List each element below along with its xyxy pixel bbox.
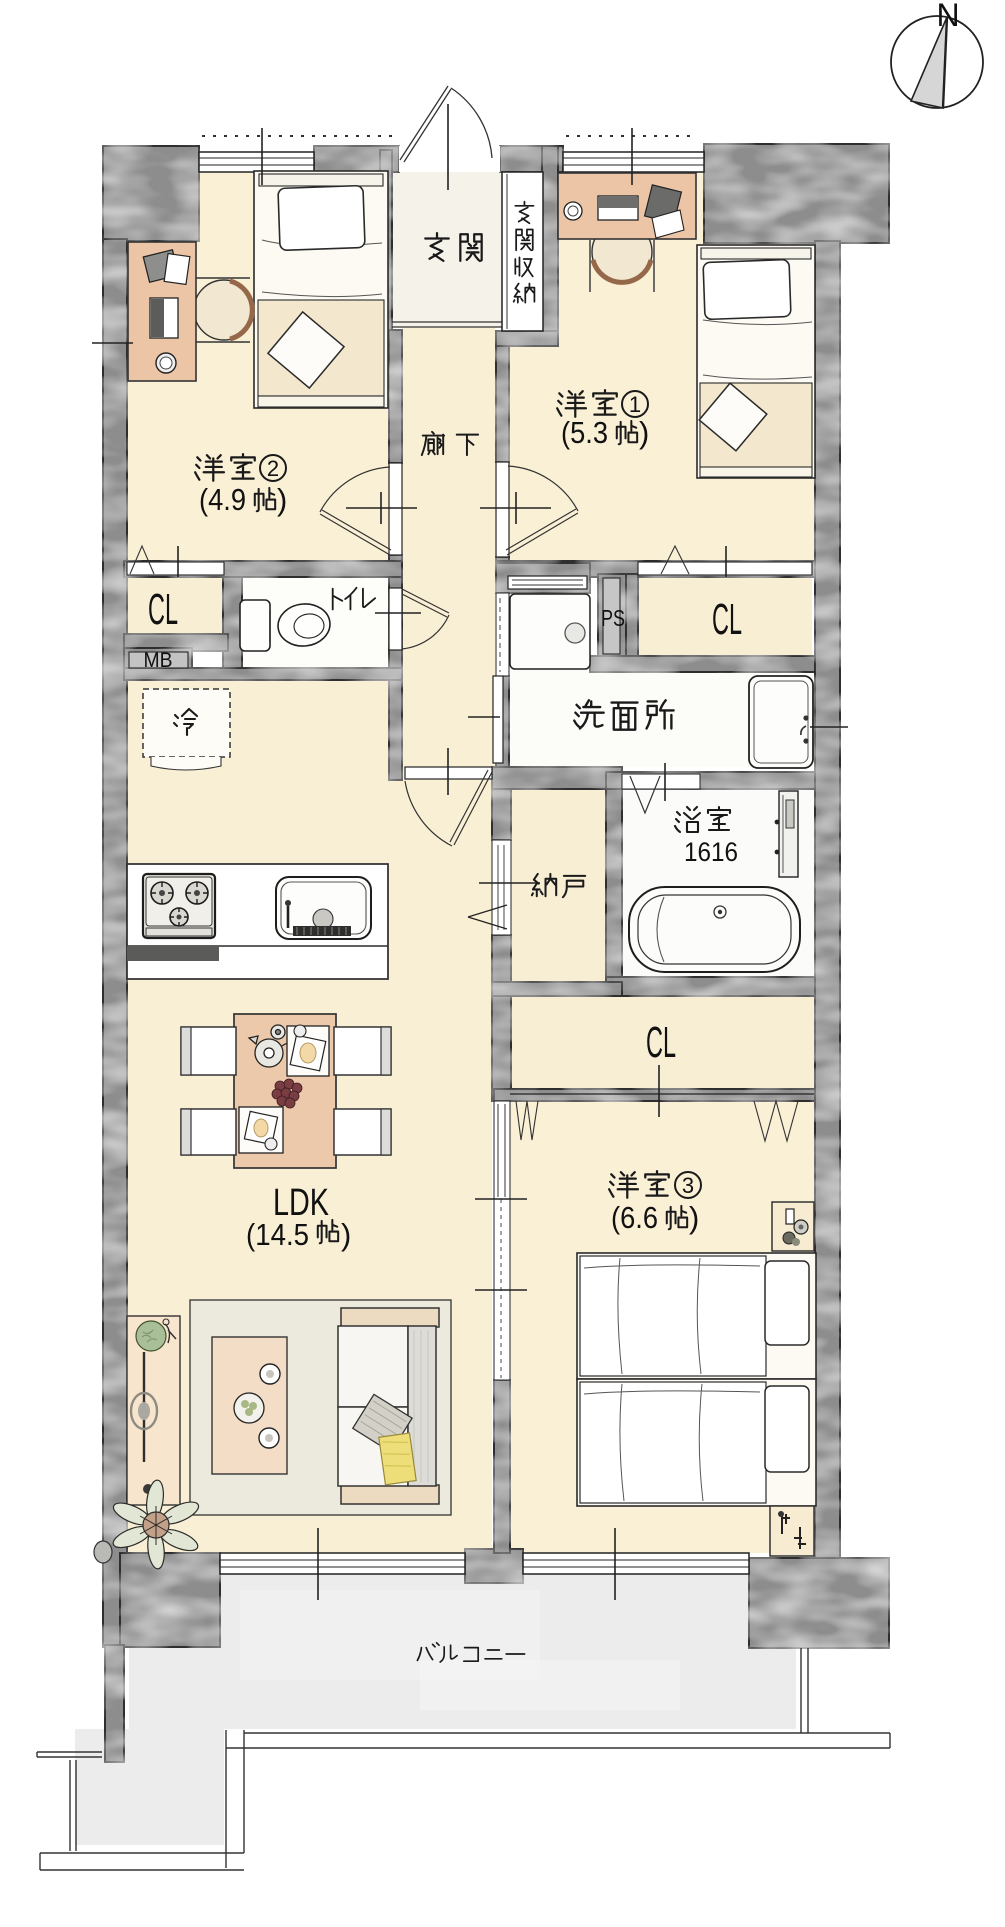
svg-text:CL: CL xyxy=(148,585,178,634)
svg-text:3: 3 xyxy=(682,1173,694,1198)
svg-text:1616: 1616 xyxy=(684,837,738,867)
svg-text:1: 1 xyxy=(629,392,641,417)
svg-text:N: N xyxy=(936,0,959,33)
svg-text:2: 2 xyxy=(267,456,279,481)
svg-text:CL: CL xyxy=(646,1018,676,1067)
svg-text:): ) xyxy=(639,415,649,450)
svg-text:MB: MB xyxy=(144,649,173,672)
svg-text:): ) xyxy=(689,1200,699,1235)
svg-text:(4.9: (4.9 xyxy=(199,482,246,517)
svg-text:): ) xyxy=(341,1217,351,1252)
svg-text:(5.3: (5.3 xyxy=(561,415,608,450)
svg-text:PS: PS xyxy=(601,605,625,631)
svg-text:(14.5: (14.5 xyxy=(246,1217,309,1252)
svg-text:(6.6: (6.6 xyxy=(611,1200,658,1235)
svg-text:CL: CL xyxy=(712,595,742,644)
svg-text:): ) xyxy=(277,482,287,517)
